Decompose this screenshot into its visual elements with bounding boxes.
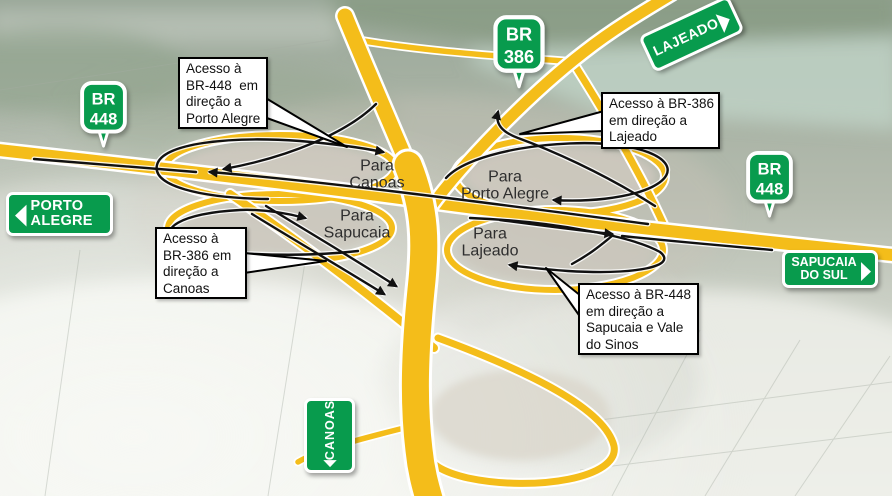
down-arrow-icon: ▼ (318, 457, 341, 469)
sign-sapucaia-do-sul: SAPUCAIA DO SUL ▶ (782, 250, 878, 288)
sign-porto-alegre: ◀ PORTO ALEGRE (6, 192, 113, 236)
callout-access-br386-lajeado: Acesso à BR-386 em direção a Lajeado (601, 92, 720, 149)
callout-access-br448-porto-alegre: Acesso à BR-448 em direção a Porto Alegr… (178, 57, 268, 129)
svg-text:BR: BR (92, 89, 116, 108)
svg-text:448: 448 (90, 110, 118, 129)
svg-text:BR: BR (758, 159, 782, 178)
left-arrow-icon: ◀ (15, 200, 27, 229)
svg-text:386: 386 (504, 47, 534, 67)
svg-text:448: 448 (756, 180, 784, 199)
svg-text:BR: BR (506, 25, 532, 45)
label-para-sapucaia: ParaSapucaia (324, 209, 391, 242)
label-para-porto-alegre: ParaPorto Alegre (461, 170, 549, 203)
interchange-map: ParaCanoas ParaPorto Alegre ParaSapucaia… (0, 0, 892, 496)
label-para-canoas: ParaCanoas (349, 159, 404, 192)
route-shield-br448-west: BR 448 (79, 80, 128, 150)
map-graphic (0, 0, 892, 496)
label-para-lajeado: ParaLajeado (462, 227, 519, 260)
route-shield-br386: BR 386 (492, 14, 546, 91)
callout-access-br448-sapucaia: Acesso à BR-448 em direção a Sapucaia e … (578, 283, 699, 355)
callout-access-br386-canoas: Acesso à BR-386 em direção a Canoas (155, 227, 247, 299)
right-arrow-icon: ▶ (861, 257, 871, 282)
route-shield-br448-east: BR 448 (745, 150, 794, 220)
sign-canoas: CANOAS ▼ (304, 398, 355, 473)
